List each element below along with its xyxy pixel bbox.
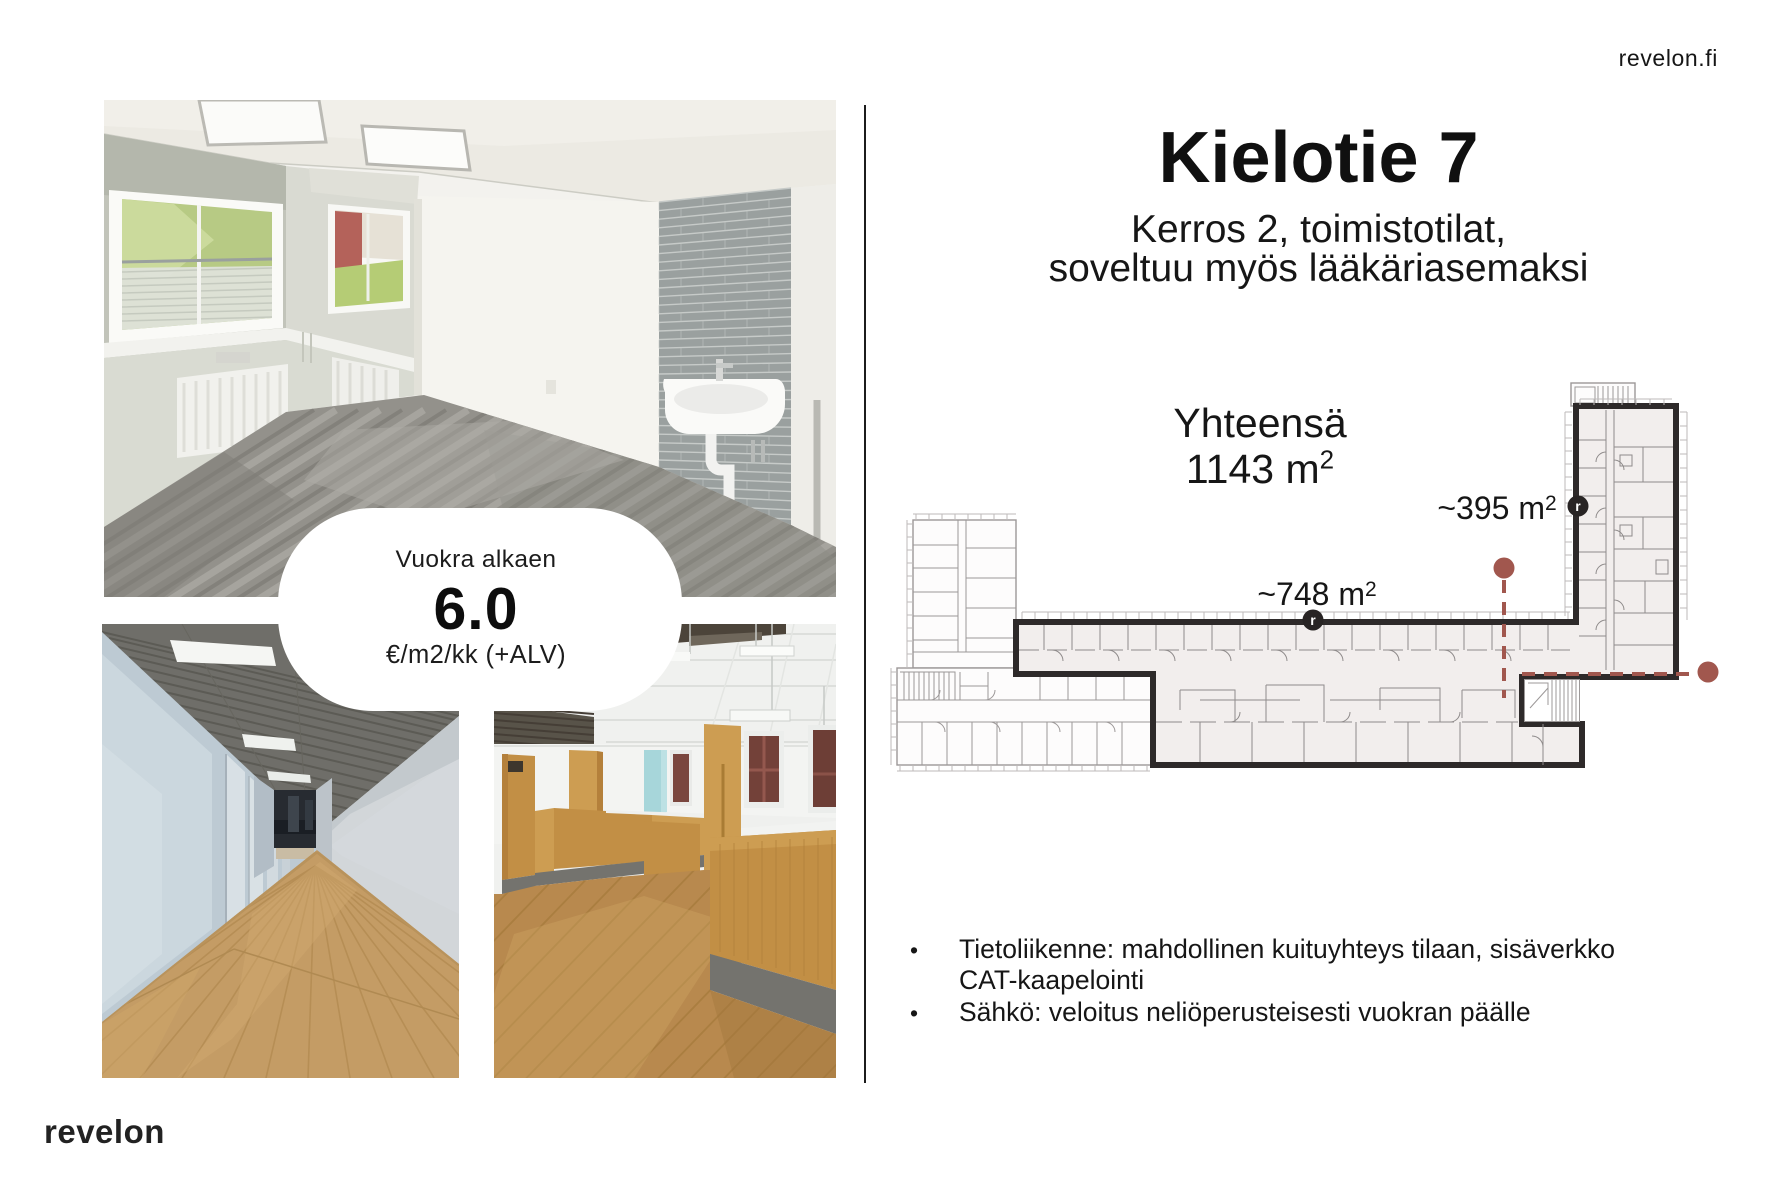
svg-text:r: r	[1575, 498, 1581, 514]
svg-text:~395 m2: ~395 m2	[1437, 490, 1556, 526]
svg-text:~748 m2: ~748 m2	[1257, 576, 1376, 612]
svg-text:r: r	[1310, 612, 1316, 628]
